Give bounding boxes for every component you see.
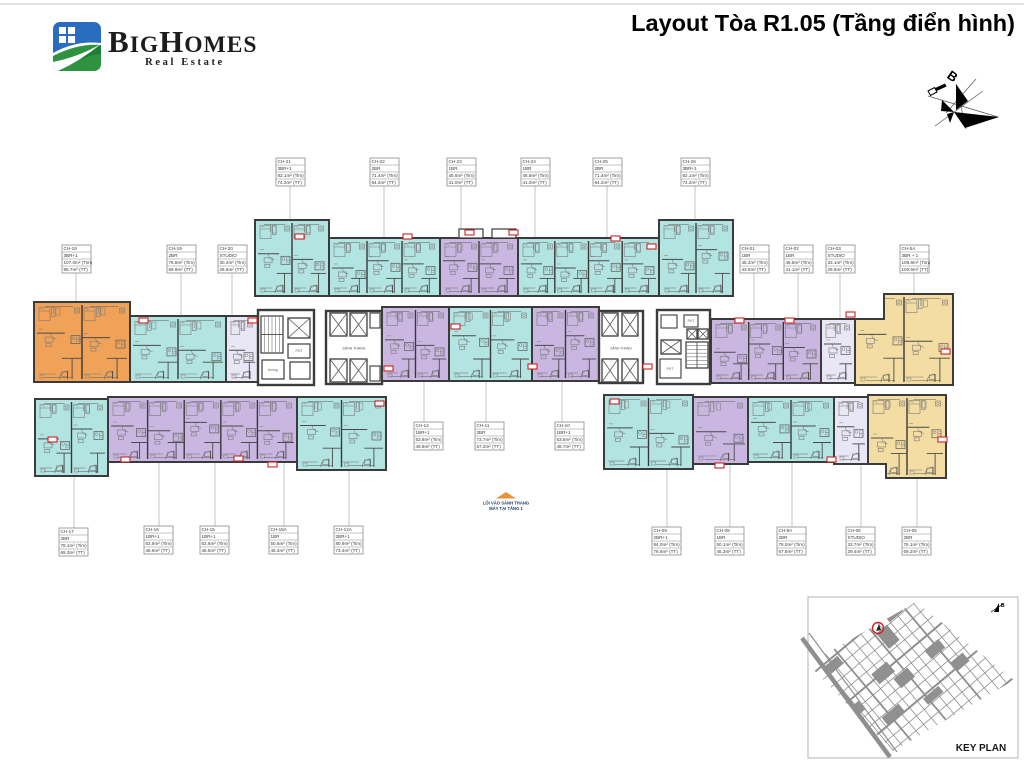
svg-text:82.1m² (Tim): 82.1m² (Tim)	[278, 173, 305, 178]
svg-text:1BR+1: 1BR+1	[416, 430, 431, 435]
svg-text:2BR: 2BR	[372, 166, 382, 171]
svg-text:26.6m² (TT): 26.6m² (TT)	[220, 267, 245, 272]
svg-text:30.2m² (Tim): 30.2m² (Tim)	[220, 260, 247, 265]
svg-text:CH-06: CH-06	[848, 528, 862, 533]
svg-text:1BR+1: 1BR+1	[557, 430, 572, 435]
svg-text:49.8m² (TT): 49.8m² (TT)	[416, 444, 441, 449]
svg-text:CH-21: CH-21	[278, 159, 292, 164]
svg-text:41.1m² (TT): 41.1m² (TT)	[786, 267, 811, 272]
svg-text:53.5m² (Tim): 53.5m² (Tim)	[557, 437, 584, 442]
svg-text:CH-18: CH-18	[64, 246, 78, 251]
svg-text:71.4m² (Tim): 71.4m² (Tim)	[372, 173, 399, 178]
svg-text:CH-11: CH-11	[477, 423, 490, 428]
svg-text:CH-05: CH-05	[904, 528, 918, 533]
svg-text:69.9m² (TT): 69.9m² (TT)	[169, 267, 194, 272]
svg-text:CH-10: CH-10	[557, 423, 571, 428]
svg-text:1BR+1: 1BR+1	[146, 534, 161, 539]
svg-text:KEY PLAN: KEY PLAN	[956, 743, 1006, 754]
svg-text:3BR+1: 3BR+1	[64, 253, 79, 258]
svg-text:107.0m² (Tim): 107.0m² (Tim)	[64, 260, 93, 265]
svg-text:82.1m² (Tim): 82.1m² (Tim)	[683, 173, 710, 178]
svg-text:CH-24: CH-24	[523, 159, 537, 164]
svg-text:B: B	[1001, 603, 1005, 609]
svg-text:CH-03: CH-03	[828, 246, 842, 251]
svg-text:95.7m² (TT): 95.7m² (TT)	[64, 267, 89, 272]
svg-text:3BR + 1: 3BR + 1	[902, 253, 919, 258]
svg-text:LỐI VÀO SẢNH THANG: LỐI VÀO SẢNH THANG	[483, 501, 529, 506]
svg-text:CH-20: CH-20	[220, 246, 234, 251]
svg-text:CH-8A: CH-8A	[779, 528, 794, 533]
svg-text:P.KT: P.KT	[688, 319, 695, 323]
svg-text:64.2m² (TT): 64.2m² (TT)	[595, 180, 620, 185]
svg-text:29.4m² (TT): 29.4m² (TT)	[848, 549, 873, 554]
svg-text:STUDIO: STUDIO	[848, 535, 866, 540]
svg-text:CH-12: CH-12	[416, 423, 430, 428]
svg-text:76.8m² (Tim): 76.8m² (Tim)	[169, 260, 196, 265]
svg-text:P.KT: P.KT	[667, 367, 674, 371]
svg-text:53.8m² (Tim): 53.8m² (Tim)	[416, 437, 443, 442]
svg-text:1BR: 1BR	[449, 166, 459, 171]
svg-text:CH-5A: CH-5A	[902, 246, 917, 251]
svg-text:80.9m² (Tim): 80.9m² (Tim)	[336, 541, 363, 546]
svg-text:41.0m² (TT): 41.0m² (TT)	[523, 180, 548, 185]
svg-text:53.9m² (Tim): 53.9m² (Tim)	[146, 541, 173, 546]
svg-text:2BR: 2BR	[61, 536, 71, 541]
svg-text:2BR: 2BR	[169, 253, 179, 258]
svg-text:69.3m² (TT): 69.3m² (TT)	[61, 550, 86, 555]
svg-text:76.6m² (TT): 76.6m² (TT)	[654, 549, 679, 554]
svg-text:100.6m² (TT): 100.6m² (TT)	[902, 267, 929, 272]
svg-text:29.5m² (TT): 29.5m² (TT)	[828, 267, 853, 272]
svg-text:67.2m² (TT): 67.2m² (TT)	[477, 444, 502, 449]
svg-text:41.0m² (TT): 41.0m² (TT)	[449, 180, 474, 185]
svg-text:48.5m² (TT): 48.5m² (TT)	[202, 548, 227, 553]
svg-text:STUDIO: STUDIO	[220, 253, 238, 258]
svg-text:73.4m² (TT): 73.4m² (TT)	[336, 548, 361, 553]
svg-text:CH-12A: CH-12A	[336, 527, 353, 532]
svg-text:CH-22: CH-22	[372, 159, 386, 164]
svg-text:1BR: 1BR	[742, 253, 752, 258]
svg-text:45.2m² (Tim): 45.2m² (Tim)	[742, 260, 769, 265]
svg-text:SẢNH THANG: SẢNH THANG	[610, 346, 632, 351]
svg-text:48.6m² (TT): 48.6m² (TT)	[146, 548, 171, 553]
svg-text:1BR+1: 1BR+1	[202, 534, 217, 539]
svg-text:78.0m² (Tim): 78.0m² (Tim)	[779, 542, 806, 547]
svg-text:67.6m² (TT): 67.6m² (TT)	[779, 549, 804, 554]
svg-text:Layout Tòa R1.05 (Tầng điển hì: Layout Tòa R1.05 (Tầng điển hình)	[631, 10, 1015, 36]
svg-text:2BR: 2BR	[477, 430, 487, 435]
svg-text:MÁY TẠI TẦNG 1: MÁY TẠI TẦNG 1	[489, 506, 523, 511]
svg-text:33.7m² (Tim): 33.7m² (Tim)	[848, 542, 875, 547]
svg-text:3BR+1: 3BR+1	[683, 166, 698, 171]
svg-text:CH-09: CH-09	[654, 528, 668, 533]
svg-text:74.2m² (TT): 74.2m² (TT)	[278, 180, 303, 185]
svg-text:CH-23: CH-23	[449, 159, 463, 164]
svg-text:69.2m² (TT): 69.2m² (TT)	[904, 549, 929, 554]
svg-text:2BR: 2BR	[595, 166, 605, 171]
svg-text:48.7m² (TT): 48.7m² (TT)	[557, 444, 582, 449]
svg-text:1BR: 1BR	[271, 534, 281, 539]
svg-text:2BR+1: 2BR+1	[654, 535, 669, 540]
svg-text:45.8m² (Tim): 45.8m² (Tim)	[786, 260, 813, 265]
svg-text:76.1m² (Tim): 76.1m² (Tim)	[904, 542, 931, 547]
svg-text:Real Estate: Real Estate	[145, 57, 225, 68]
svg-text:CH-25: CH-25	[595, 159, 609, 164]
svg-text:CH-15A: CH-15A	[271, 527, 288, 532]
svg-text:73.7m² (Tim): 73.7m² (Tim)	[477, 437, 504, 442]
svg-text:CH-01: CH-01	[742, 246, 756, 251]
svg-text:2BR+1: 2BR+1	[336, 534, 351, 539]
svg-text:CH-19: CH-19	[169, 246, 183, 251]
svg-text:P.KT: P.KT	[295, 349, 302, 353]
svg-text:108.8m² (Tim): 108.8m² (Tim)	[902, 260, 931, 265]
svg-text:CH-26: CH-26	[683, 159, 697, 164]
svg-text:CH-15: CH-15	[202, 527, 216, 532]
svg-text:SẢNH THANG: SẢNH THANG	[343, 346, 366, 351]
svg-text:53.6m² (Tim): 53.6m² (Tim)	[202, 541, 229, 546]
svg-text:45.3m² (TT): 45.3m² (TT)	[717, 549, 742, 554]
svg-text:64.2m² (TT): 64.2m² (TT)	[372, 180, 397, 185]
svg-text:STUDIO: STUDIO	[828, 253, 846, 258]
svg-text:CH-17: CH-17	[61, 529, 75, 534]
svg-text:74.2m² (TT): 74.2m² (TT)	[683, 180, 708, 185]
svg-text:43.0m² (TT): 43.0m² (TT)	[742, 267, 767, 272]
svg-text:1BR: 1BR	[786, 253, 796, 258]
svg-text:1BR: 1BR	[717, 535, 727, 540]
svg-text:1BR: 1BR	[523, 166, 533, 171]
svg-text:50.1m² (Tim): 50.1m² (Tim)	[717, 542, 744, 547]
svg-text:3BR+1: 3BR+1	[278, 166, 293, 171]
svg-text:33.1m² (Tim): 33.1m² (Tim)	[828, 260, 855, 265]
svg-text:CH-08: CH-08	[717, 528, 731, 533]
svg-text:50.6m² (Tim): 50.6m² (Tim)	[271, 541, 298, 546]
svg-text:CH-02: CH-02	[786, 246, 800, 251]
svg-text:45.8m² (Tim): 45.8m² (Tim)	[523, 173, 550, 178]
svg-text:84.0m² (Tim): 84.0m² (Tim)	[654, 542, 681, 547]
svg-text:78.1m² (Tim): 78.1m² (Tim)	[61, 543, 88, 548]
svg-text:2BR: 2BR	[904, 535, 914, 540]
svg-text:71.4m² (Tim): 71.4m² (Tim)	[595, 173, 622, 178]
svg-text:2BR: 2BR	[779, 535, 789, 540]
svg-text:45.4m² (TT): 45.4m² (TT)	[271, 548, 296, 553]
svg-text:CH-16: CH-16	[146, 527, 160, 532]
svg-text:buồng: buồng	[268, 368, 277, 372]
svg-text:45.6m² (Tim): 45.6m² (Tim)	[449, 173, 476, 178]
